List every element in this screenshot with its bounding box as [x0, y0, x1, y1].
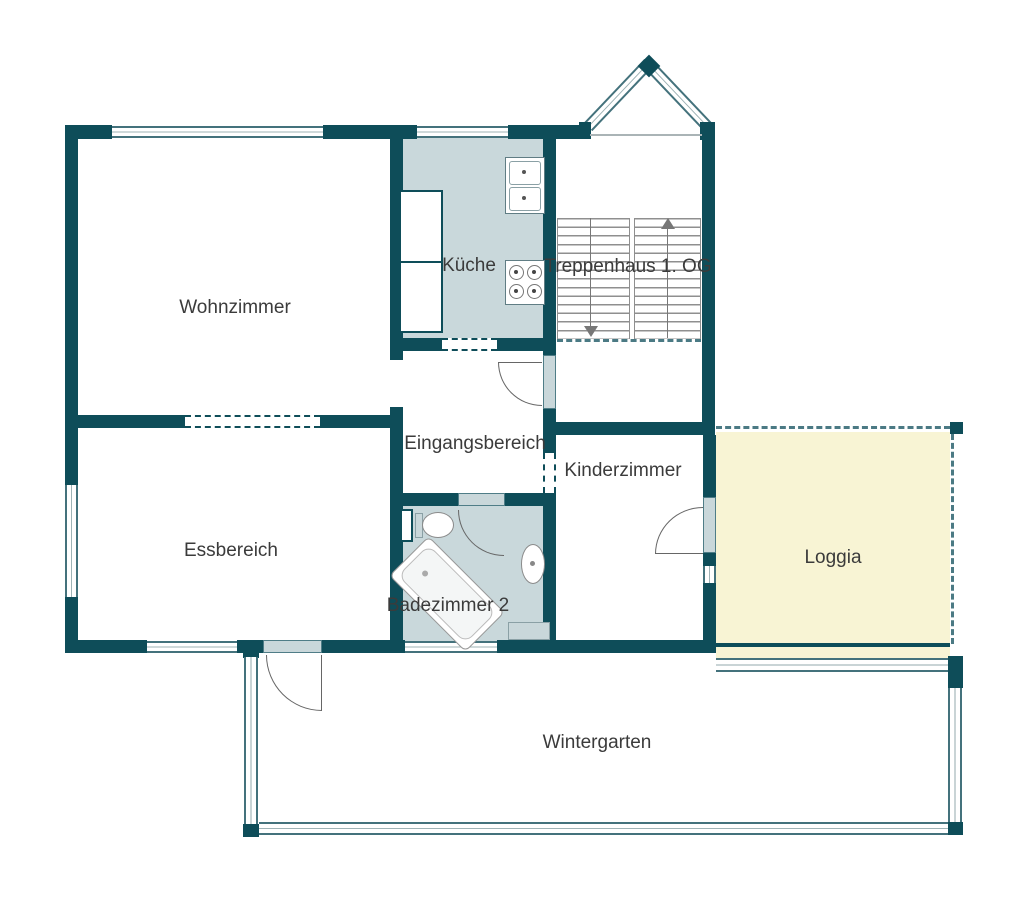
opening-kueche [442, 338, 497, 351]
room-loggia-fill [716, 432, 950, 658]
stairs-open-edge [557, 339, 701, 342]
wall-landing-kinder [556, 422, 715, 435]
loggia-open-edge-right [951, 434, 954, 644]
wintergarten-block-bottom-right [948, 822, 963, 835]
window-top-wohnzimmer [112, 126, 323, 138]
window-essbereich-bottom [147, 641, 237, 653]
wall-bottom-1 [65, 640, 147, 653]
room-label-loggia: Loggia [804, 547, 861, 569]
floor-plan: Wohnzimmer Küche Treppenhaus 1. OG Einga… [0, 0, 1026, 900]
window-essbereich-left [65, 485, 78, 597]
kitchen-counter [399, 190, 443, 263]
kitchen-counter [399, 261, 443, 333]
room-label-badezimmer: Badezimmer 2 [387, 595, 510, 617]
room-label-kueche: Küche [442, 255, 496, 277]
door-panel-treppenhaus [543, 355, 556, 409]
door-arc-treppenhaus [498, 362, 542, 406]
kitchen-sink-icon [505, 157, 545, 214]
door-panel-wintergarten [263, 640, 322, 653]
washbasin-icon [521, 544, 545, 584]
bay-window-block-left [579, 122, 591, 139]
stairs-arrow-up-icon [661, 218, 675, 229]
wall-bad-top-1 [390, 493, 458, 506]
room-label-eingangsbereich: Eingangsbereich [404, 433, 546, 455]
window-wintergarten-left [244, 657, 258, 825]
opening-wohn-ess [185, 415, 320, 428]
room-label-kinderzimmer: Kinderzimmer [564, 460, 681, 482]
loggia-open-edge-top [716, 426, 950, 429]
wall-bad-top-2 [505, 493, 556, 506]
window-wintergarten-bottom [259, 822, 949, 835]
window-badezimmer-bottom [405, 641, 497, 653]
window-wintergarten-right [948, 688, 962, 822]
toilet-icon [400, 509, 413, 542]
window-top-kueche [417, 126, 508, 138]
wall-kinder-loggia-3 [703, 583, 716, 653]
loggia-corner-block-bottom-right [948, 656, 963, 688]
loggia-bottom-line [716, 643, 950, 647]
room-label-treppenhaus: Treppenhaus 1. OG [544, 256, 711, 278]
loggia-corner-block-top-right [950, 422, 963, 434]
stove-icon [505, 260, 545, 305]
room-label-essbereich: Essbereich [184, 540, 278, 562]
stairs-arrow-down-icon [584, 326, 598, 337]
door-panel-badezimmer [458, 493, 505, 506]
toilet-bowl [422, 512, 454, 538]
wall-kinder-loggia-1 [703, 435, 716, 498]
wall-wohn-ess-1 [65, 415, 185, 428]
door-arc-wintergarten [266, 655, 322, 711]
window-loggia-bottom [716, 658, 949, 672]
window-kinder-loggia-small [703, 566, 716, 583]
room-label-wintergarten: Wintergarten [543, 732, 652, 754]
opening-eingang-kinder [543, 453, 556, 493]
room-label-wohnzimmer: Wohnzimmer [179, 297, 291, 319]
door-arc-loggia [655, 507, 703, 554]
stairs-arrow-up-shaft [667, 228, 668, 338]
wall-bottom-4 [497, 640, 715, 653]
wintergarten-block-bottom-left [243, 824, 259, 837]
door-panel-loggia [703, 497, 716, 553]
stairs-flight-left [557, 218, 630, 339]
wall-kinder-loggia-2 [703, 553, 716, 566]
bath-cabinet [508, 622, 550, 640]
wall-left-upper [65, 125, 78, 485]
wall-right-upper [702, 125, 715, 435]
bay-window-baseline [590, 134, 708, 136]
wintergarten-block-top-left [243, 643, 259, 658]
wall-kueche-bottom-1 [390, 338, 442, 351]
